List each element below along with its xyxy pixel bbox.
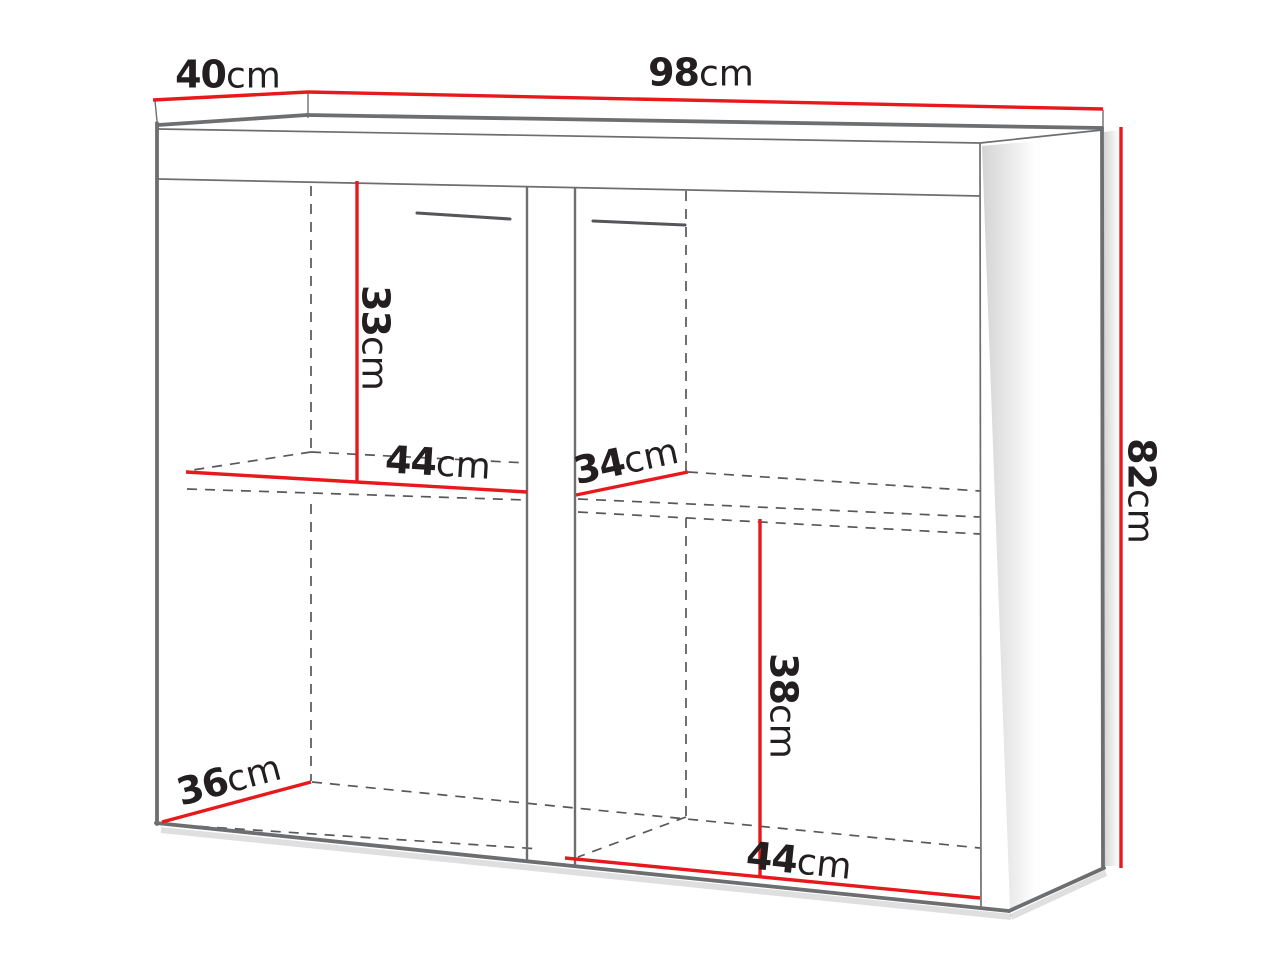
dimension-unit: cm [435,443,492,487]
dimension-label-left-shelf-width: 44cm [384,440,492,485]
hidden-edges-dashed [163,186,980,857]
dimension-unit: cm [354,336,395,391]
dimension-value: 33 [354,285,398,336]
right-door-handle-icon [593,221,685,225]
dimension-lines [153,92,1121,898]
cabinet-dimension-diagram: 40cm 98cm 82cm 33cm 44cm 34cm 38cm 44cm … [0,0,1280,960]
door-handles [417,213,685,225]
dim-line-top-width [308,92,1103,109]
dimension-unit: cm [1120,489,1161,544]
dimension-label-height: 82cm [1122,438,1161,544]
dimension-value: 44 [744,833,799,882]
dimension-label-top-depth: 40cm [175,56,281,95]
dimension-label-top-width: 98cm [648,54,754,93]
cabinet-outline-thick [156,115,1104,911]
left-door-handle-icon [417,213,510,219]
dimension-unit: cm [762,704,803,759]
dimension-unit: cm [226,56,281,97]
panel-shading [161,130,1119,917]
dimension-value: 82 [1120,438,1164,489]
dimension-value: 44 [384,437,437,484]
dimension-label-lower-section-height: 38cm [764,653,803,759]
dimension-value: 40 [175,53,226,97]
dimension-value: 98 [648,51,699,95]
dimension-label-upper-section-height: 33cm [356,285,395,391]
dimension-unit: cm [699,54,754,95]
dimension-unit: cm [795,841,854,888]
dimension-value: 38 [762,653,806,704]
